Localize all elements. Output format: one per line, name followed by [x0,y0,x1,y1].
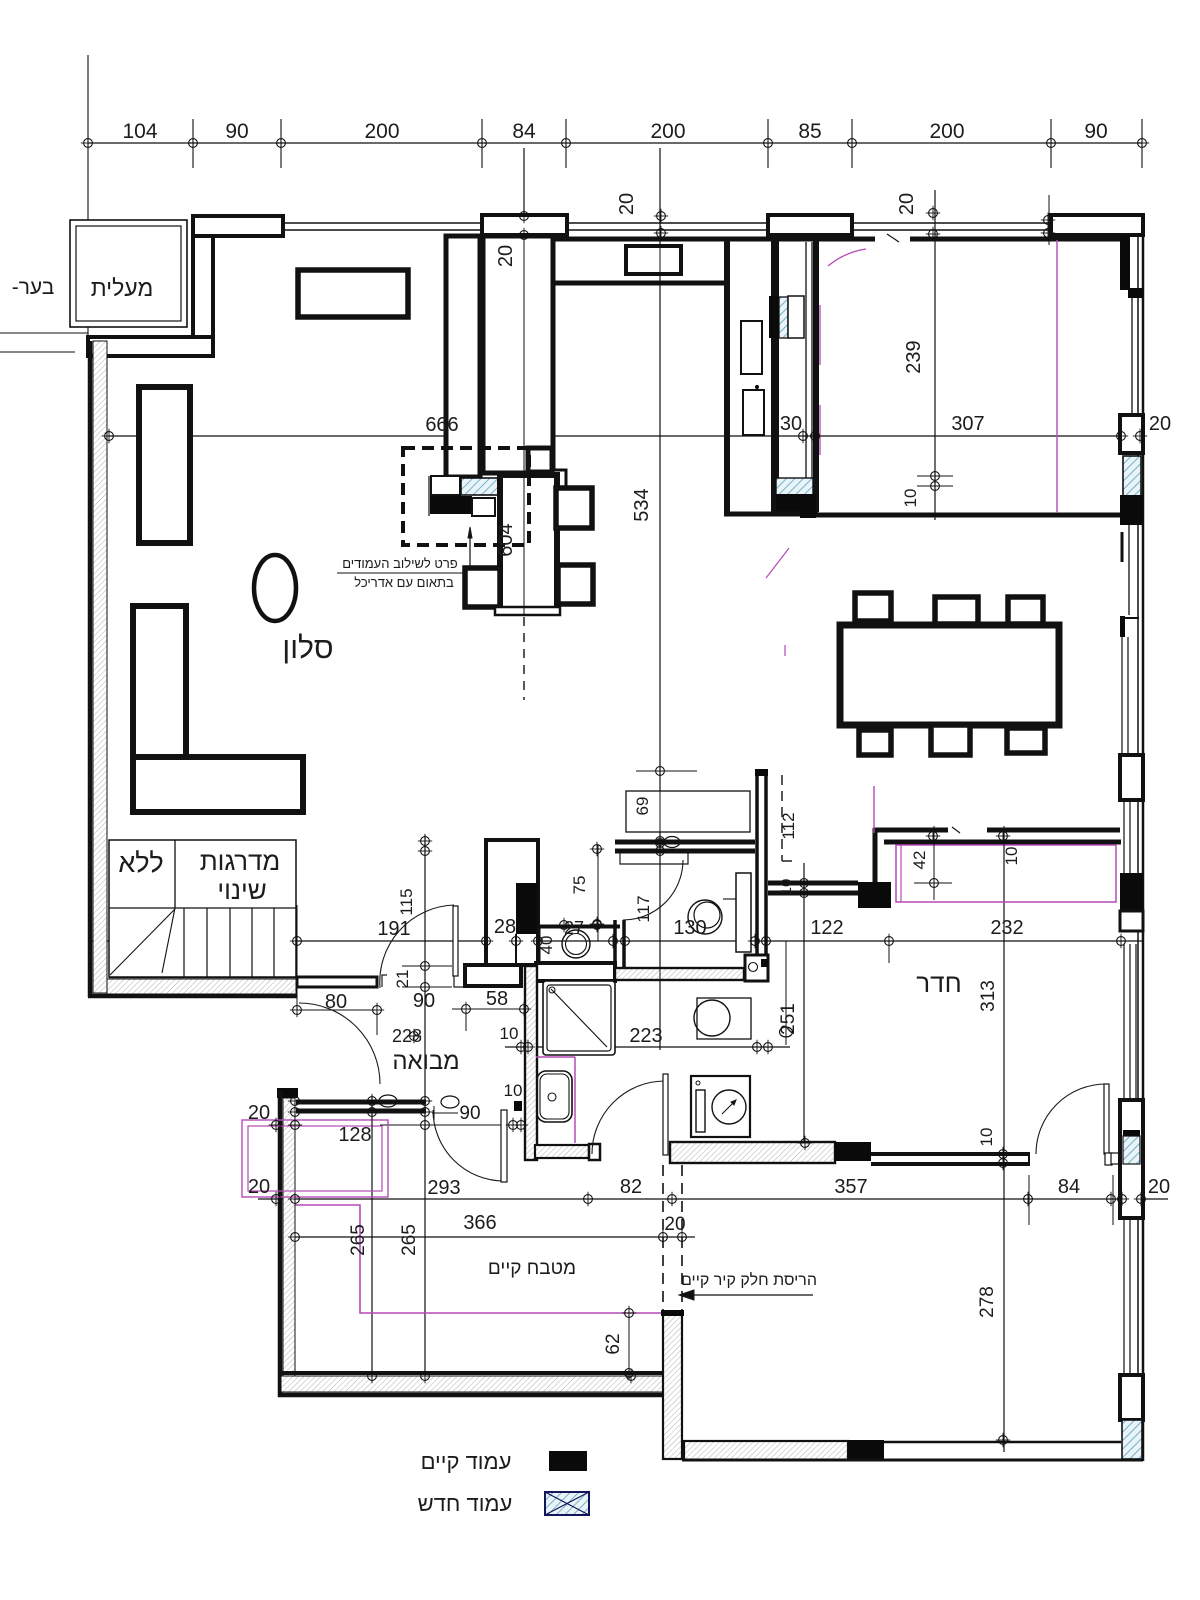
svg-text:130: 130 [673,917,706,939]
svg-text:90: 90 [413,990,435,1012]
svg-text:שינוי: שינוי [217,875,266,905]
svg-text:357: 357 [834,1176,867,1198]
svg-text:20: 20 [616,193,638,215]
svg-text:84: 84 [512,120,536,143]
svg-text:10: 10 [901,489,920,508]
svg-text:מדרגות: מדרגות [200,846,281,876]
svg-text:עמוד קיים: עמוד קיים [421,1449,512,1474]
svg-text:232: 232 [990,917,1023,939]
svg-text:42: 42 [910,851,929,870]
svg-text:30: 30 [780,413,802,435]
svg-text:366: 366 [463,1212,496,1234]
svg-text:עמוד חדש: עמוד חדש [418,1491,513,1516]
svg-text:128: 128 [338,1124,371,1146]
svg-text:115: 115 [397,888,416,915]
svg-text:90: 90 [1084,120,1107,143]
svg-text:112: 112 [779,812,798,839]
svg-text:239: 239 [903,340,925,373]
svg-text:90: 90 [225,120,248,143]
svg-text:251: 251 [778,1003,799,1035]
svg-text:חדר: חדר [916,968,961,998]
svg-text:20: 20 [248,1102,270,1124]
svg-text:פרט לשילוב העמודים: פרט לשילוב העמודים [342,556,458,571]
svg-text:20: 20 [664,1214,685,1235]
svg-text:604: 604 [495,523,517,556]
svg-text:21: 21 [393,970,412,989]
svg-text:מבואה: מבואה [392,1048,459,1075]
svg-text:313: 313 [978,980,999,1012]
svg-text:265: 265 [399,1224,420,1256]
svg-text:293: 293 [427,1177,460,1199]
svg-text:28: 28 [494,916,516,938]
svg-text:104: 104 [122,120,157,143]
svg-text:27: 27 [564,918,584,938]
svg-text:ללא: ללא [118,848,163,878]
svg-text:הריסת חלק קיר קיים: הריסת חלק קיר קיים [681,1271,817,1289]
svg-text:84: 84 [1058,1176,1080,1198]
svg-text:278: 278 [977,1286,998,1318]
svg-text:10: 10 [778,879,795,896]
svg-text:200: 200 [929,120,964,143]
svg-text:228: 228 [392,1026,422,1046]
svg-text:-בער: -בער [12,276,55,299]
svg-text:265: 265 [348,1224,369,1256]
svg-text:מעלית: מעלית [91,275,154,301]
svg-text:80: 80 [325,991,347,1013]
svg-text:10: 10 [504,1081,523,1100]
svg-text:82: 82 [620,1176,642,1198]
svg-text:58: 58 [486,988,508,1010]
svg-text:בתאום עם אדריכל: בתאום עם אדריכל [354,575,454,590]
svg-text:307: 307 [951,413,984,435]
svg-text:200: 200 [364,120,399,143]
svg-text:20: 20 [248,1176,270,1198]
svg-text:191: 191 [377,918,410,940]
svg-text:20: 20 [495,245,517,267]
svg-text:69: 69 [633,797,652,816]
svg-text:10: 10 [500,1024,519,1043]
svg-text:534: 534 [631,488,653,521]
svg-text:מטבח קיים: מטבח קיים [488,1258,576,1279]
svg-text:117: 117 [634,895,653,922]
svg-text:10: 10 [1002,847,1021,866]
svg-text:85: 85 [798,120,821,143]
svg-text:90: 90 [459,1103,480,1124]
svg-text:20: 20 [1148,1176,1170,1198]
svg-text:סלון: סלון [282,632,333,665]
svg-text:10: 10 [977,1128,996,1147]
svg-text:200: 200 [650,120,685,143]
svg-text:62: 62 [603,1333,624,1354]
svg-text:75: 75 [570,876,589,895]
svg-text:666: 666 [425,414,458,436]
svg-text:223: 223 [629,1025,662,1047]
svg-text:20: 20 [896,193,918,215]
svg-text:20: 20 [1149,413,1171,435]
svg-text:122: 122 [810,917,843,939]
svg-text:40: 40 [537,936,556,955]
